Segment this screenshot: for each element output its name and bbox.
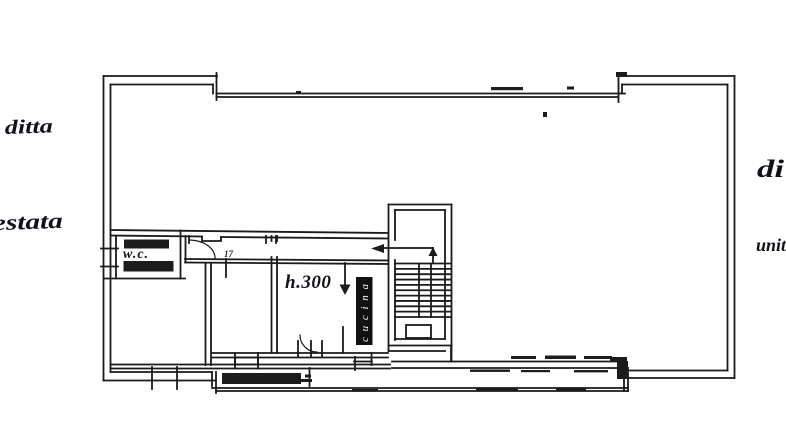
- svg-text:ditta: ditta: [4, 115, 53, 139]
- svg-text:testata: testata: [0, 208, 63, 236]
- svg-text:di: di: [757, 156, 784, 183]
- svg-text:h.300: h.300: [285, 272, 331, 293]
- svg-text:unit: unit: [756, 235, 786, 255]
- svg-text:17: 17: [224, 249, 234, 259]
- svg-text:w.c.: w.c.: [123, 247, 149, 262]
